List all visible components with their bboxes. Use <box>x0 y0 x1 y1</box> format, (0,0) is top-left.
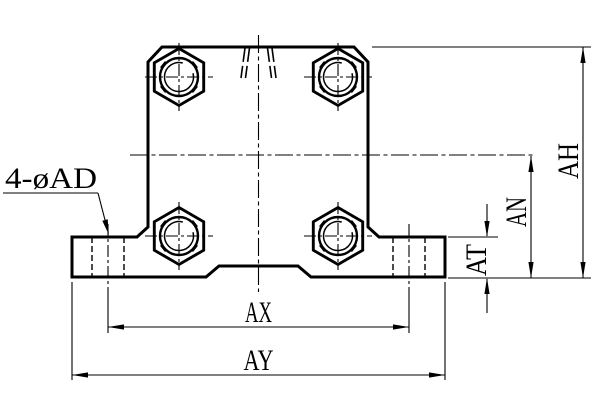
arrowhead-ay-left <box>72 372 88 377</box>
arrowhead-an-bottom <box>528 262 533 278</box>
dim-label-at: AT <box>460 244 493 276</box>
arrowhead-ah-bottom <box>580 262 585 278</box>
hex-bolt-bottom-left <box>145 202 213 270</box>
dim-label-ax: AX <box>245 296 272 329</box>
arrowhead-ay-right <box>429 372 445 377</box>
hole-callout-label: 4-øAD <box>5 162 97 195</box>
arrowhead-at-top <box>484 221 489 237</box>
arrowhead-ax-left <box>108 324 124 329</box>
hex-bolt-bottom-right <box>304 202 372 270</box>
technical-drawing: AH AN AT AX AY 4-øAD <box>0 0 600 418</box>
hidden-taper-line <box>268 48 272 78</box>
dim-label-ah: AH <box>552 143 585 179</box>
callout-arrowhead <box>102 219 109 234</box>
dim-label-ay: AY <box>244 344 274 377</box>
hidden-taper-line <box>246 48 250 78</box>
hidden-taper-line <box>241 48 245 78</box>
drawing-canvas: AH AN AT AX AY 4-øAD <box>0 0 600 418</box>
arrowhead-ax-right <box>393 324 409 329</box>
callout-leader-line <box>98 193 105 220</box>
dim-label-an: AN <box>500 197 533 227</box>
hidden-taper-line <box>272 48 276 78</box>
arrowhead-an-top <box>528 156 533 172</box>
arrowhead-ah-top <box>580 47 585 63</box>
arrowhead-at-bottom <box>484 278 489 294</box>
